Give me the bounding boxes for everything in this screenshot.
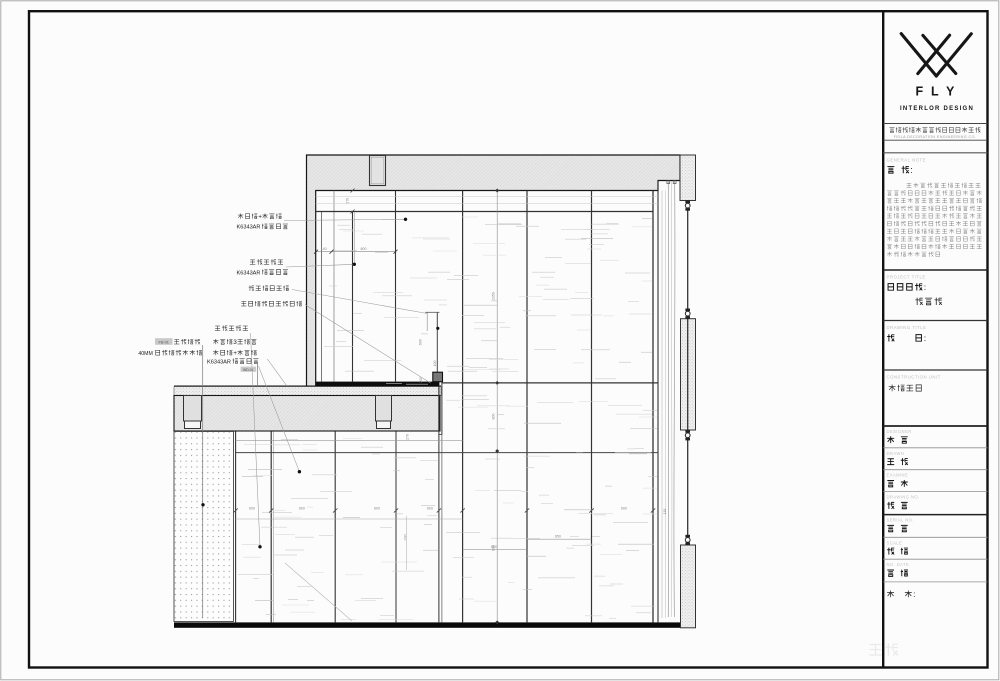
svg-text:PROJECT TITLE: PROJECT TITLE (887, 275, 926, 280)
svg-text:DRAWING NO.: DRAWING NO. (887, 495, 920, 500)
svg-text:600: 600 (299, 506, 305, 510)
svg-text:CONSTRUCTION UNIT: CONSTRUCTION UNIT (887, 375, 941, 380)
svg-text:DRAWING TITLE: DRAWING TITLE (887, 325, 927, 330)
svg-text::: : (910, 165, 912, 175)
svg-text:DESIGNER: DESIGNER (887, 429, 912, 434)
svg-text:GENERAL NOTE: GENERAL NOTE (887, 158, 927, 163)
svg-text:INTERLOR DESIGN: INTERLOR DESIGN (900, 106, 974, 112)
svg-text::: : (913, 590, 915, 599)
svg-text:FB-01: FB-01 (159, 340, 169, 344)
svg-text::: : (924, 282, 926, 292)
svg-text:40MM: 40MM (138, 351, 152, 357)
svg-text:600: 600 (418, 339, 422, 345)
svg-text:2350: 2350 (492, 292, 496, 300)
svg-text:270: 270 (406, 434, 410, 440)
svg-text:118: 118 (663, 509, 667, 515)
svg-text:K6343AR: K6343AR (237, 270, 261, 276)
svg-text:K6343AR: K6343AR (237, 225, 261, 231)
svg-text:3: 3 (233, 339, 237, 346)
svg-text:100: 100 (433, 361, 437, 367)
svg-text:F L Y: F L Y (915, 85, 956, 99)
svg-text:DRAWN: DRAWN (887, 451, 905, 456)
svg-text:800: 800 (492, 414, 496, 420)
svg-text:600: 600 (374, 506, 380, 510)
svg-text:140: 140 (321, 247, 327, 251)
svg-text:650: 650 (555, 535, 561, 539)
svg-text:170: 170 (345, 198, 349, 204)
svg-text:230: 230 (403, 535, 407, 541)
svg-text:NO. DATE: NO. DATE (887, 562, 910, 567)
svg-text:600: 600 (427, 506, 433, 510)
svg-text:600: 600 (621, 506, 627, 510)
svg-text:SCALE: SCALE (887, 540, 903, 545)
svg-text:K6343AR: K6343AR (207, 359, 231, 365)
svg-text:800: 800 (361, 247, 367, 251)
svg-text:+: + (258, 214, 262, 221)
svg-text:+: + (233, 350, 237, 357)
svg-text:WD-01: WD-01 (243, 368, 254, 372)
svg-text:FEILA DECORATION ENGINEERING C: FEILA DECORATION ENGINEERING CO. (894, 135, 977, 139)
svg-text::: : (924, 333, 926, 343)
svg-text:600: 600 (249, 506, 255, 510)
svg-text:EXAMINE: EXAMINE (887, 473, 909, 478)
svg-text:SERIAL NO.: SERIAL NO. (887, 518, 914, 523)
svg-text:600: 600 (491, 545, 497, 549)
